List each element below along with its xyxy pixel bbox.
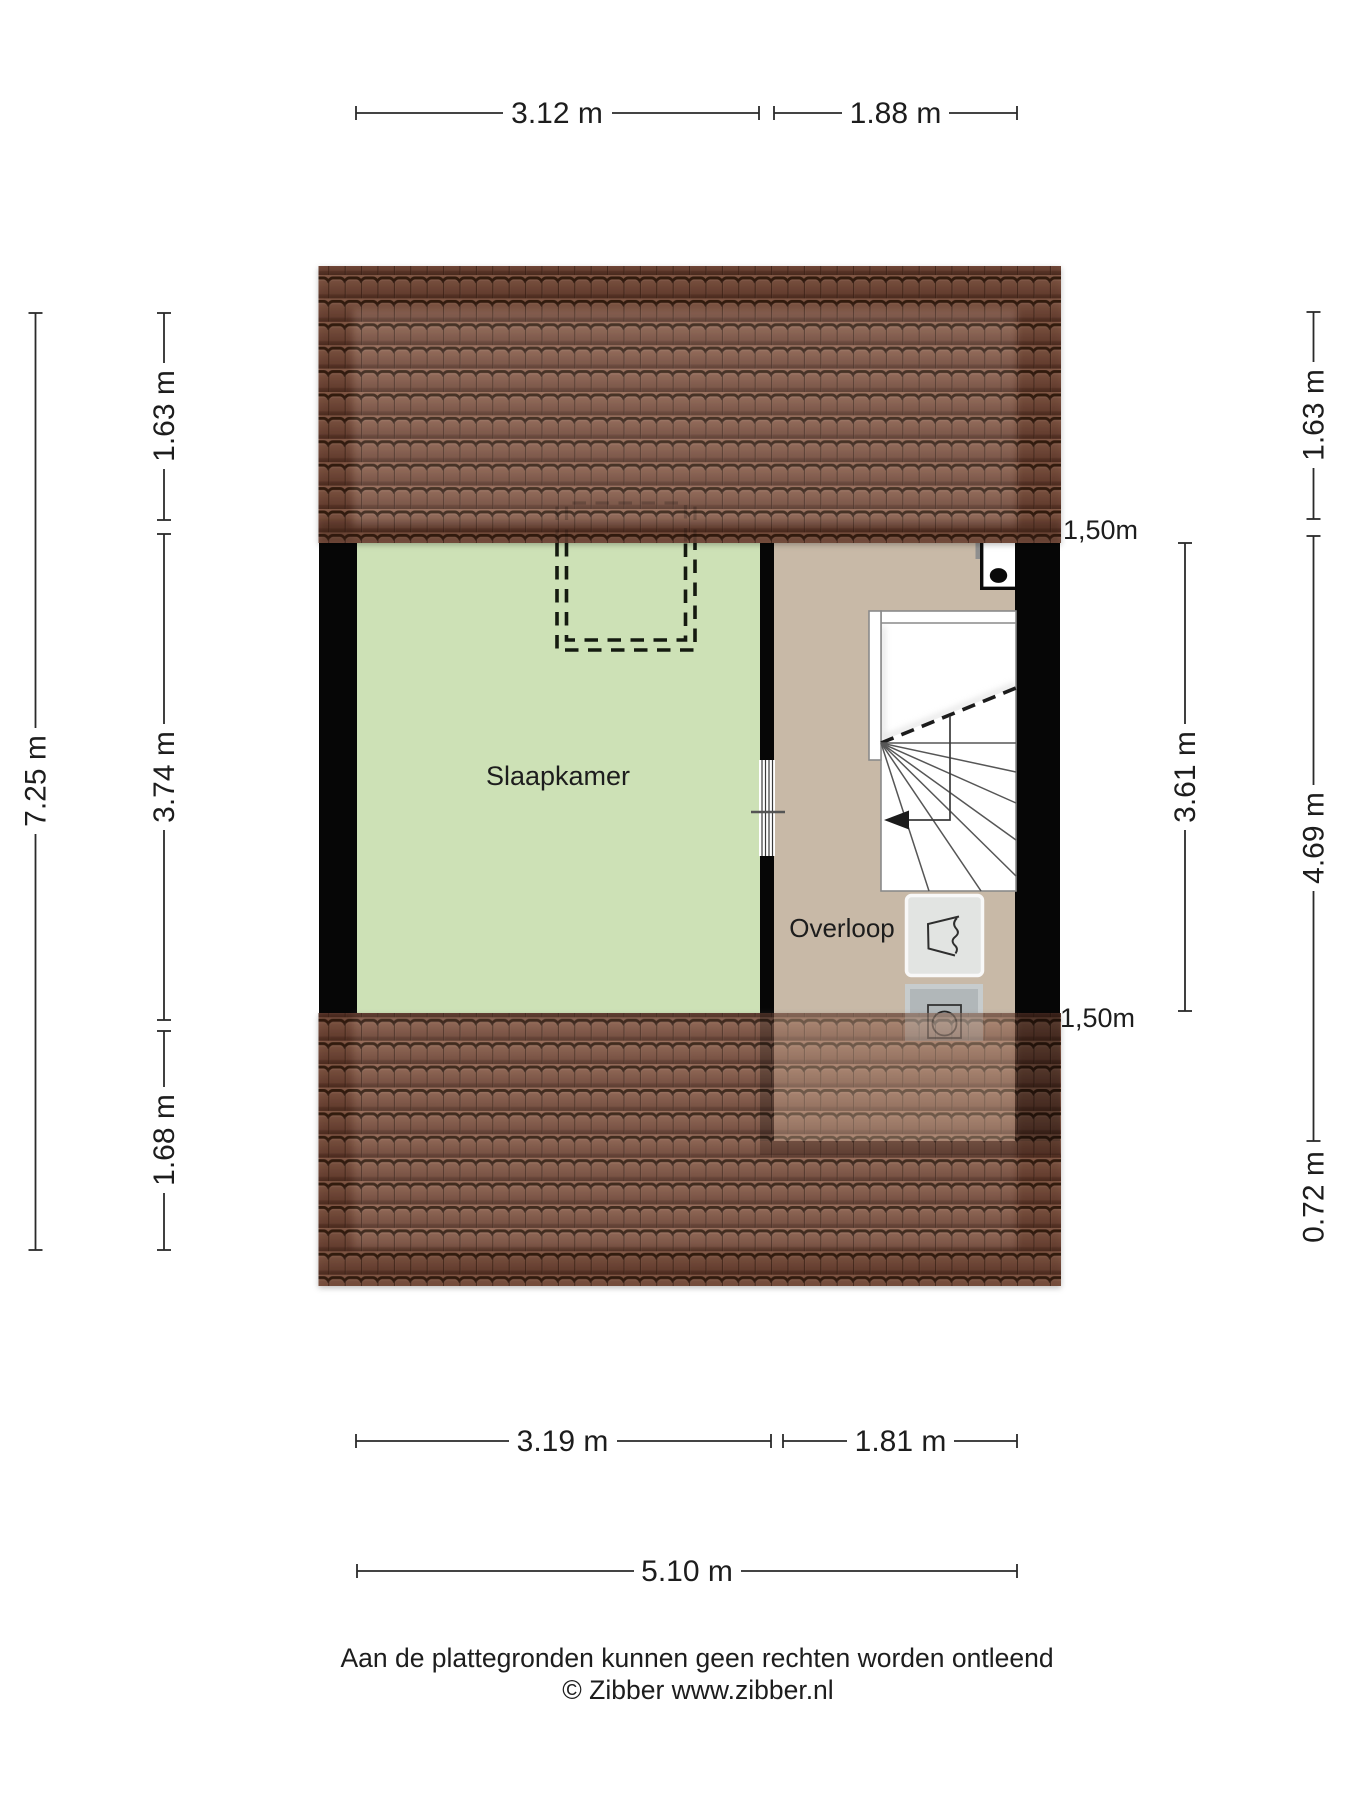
svg-text:3.19 m: 3.19 m bbox=[517, 1425, 609, 1458]
svg-text:1,50m: 1,50m bbox=[1063, 515, 1138, 545]
svg-text:3.12 m: 3.12 m bbox=[511, 97, 603, 130]
svg-text:1.88 m: 1.88 m bbox=[850, 97, 942, 130]
svg-text:Slaapkamer: Slaapkamer bbox=[486, 761, 630, 791]
svg-text:5.10 m: 5.10 m bbox=[641, 1555, 733, 1588]
svg-text:1.68 m: 1.68 m bbox=[148, 1094, 181, 1186]
svg-text:0.72 m: 0.72 m bbox=[1298, 1151, 1331, 1243]
svg-text:Overloop: Overloop bbox=[789, 913, 895, 943]
svg-text:4.69 m: 4.69 m bbox=[1298, 792, 1331, 884]
svg-text:1.63 m: 1.63 m bbox=[148, 370, 181, 462]
svg-text:7.25 m: 7.25 m bbox=[20, 735, 53, 827]
svg-text:Aan de plattegronden kunnen ge: Aan de plattegronden kunnen geen rechten… bbox=[340, 1643, 1053, 1673]
svg-text:© Zibber www.zibber.nl: © Zibber www.zibber.nl bbox=[562, 1675, 833, 1705]
svg-text:3.74 m: 3.74 m bbox=[148, 731, 181, 823]
svg-text:3.61 m: 3.61 m bbox=[1169, 731, 1202, 823]
svg-text:1.63 m: 1.63 m bbox=[1298, 369, 1331, 461]
svg-text:1.81 m: 1.81 m bbox=[855, 1425, 947, 1458]
svg-text:1,50m: 1,50m bbox=[1060, 1003, 1135, 1033]
